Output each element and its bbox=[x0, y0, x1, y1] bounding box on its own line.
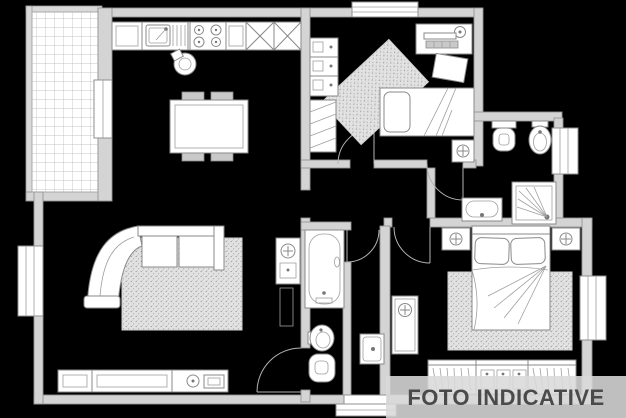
window-icon bbox=[352, 2, 418, 17]
desk-icon bbox=[416, 24, 472, 83]
dining-table-icon bbox=[170, 92, 248, 161]
kitchen-counter bbox=[112, 22, 301, 75]
nightstand-icon bbox=[552, 228, 580, 250]
washing-column-icon bbox=[276, 238, 300, 326]
toilet-icon bbox=[309, 354, 335, 382]
bidet-icon bbox=[308, 325, 334, 351]
kettle-icon bbox=[171, 49, 196, 75]
terrace-wall-top bbox=[26, 6, 102, 12]
floorplan-svg: FOTO INDICATIVE bbox=[0, 0, 626, 418]
nightstand-icon bbox=[452, 140, 474, 162]
window-icon bbox=[580, 276, 606, 340]
terrace-door-icon bbox=[94, 80, 112, 138]
bidet-icon bbox=[529, 121, 551, 154]
shower-icon bbox=[512, 182, 556, 224]
bathroom-1 bbox=[305, 230, 344, 382]
master-bedroom bbox=[392, 226, 580, 394]
nightstand-icon bbox=[442, 228, 470, 250]
hall-console-icon bbox=[360, 334, 384, 364]
hallway bbox=[360, 334, 384, 364]
door-icon bbox=[257, 348, 301, 392]
bookshelf-icon bbox=[310, 38, 338, 96]
double-bed-icon bbox=[472, 226, 550, 330]
living-room bbox=[58, 226, 300, 392]
window-icon bbox=[18, 246, 43, 316]
radiator-icon bbox=[310, 100, 336, 152]
desk-chair-icon bbox=[432, 53, 468, 82]
toilet-icon bbox=[492, 121, 516, 151]
window-icon bbox=[552, 128, 578, 174]
wardrobe-column-icon bbox=[392, 296, 418, 354]
watermark-text: FOTO INDICATIVE bbox=[407, 385, 604, 410]
floorplan-image: FOTO INDICATIVE bbox=[0, 0, 626, 418]
single-bed-icon bbox=[380, 88, 474, 136]
bathtub-icon bbox=[305, 230, 344, 308]
watermark-band: FOTO INDICATIVE bbox=[386, 376, 626, 418]
stove-icon bbox=[190, 22, 226, 50]
door-icon bbox=[347, 230, 379, 262]
terrace-tile-grid bbox=[32, 12, 98, 192]
bedroom-1 bbox=[310, 24, 474, 162]
door-icon bbox=[394, 227, 430, 263]
washbasin-icon bbox=[462, 198, 502, 221]
terrace-wall-left bbox=[26, 6, 32, 200]
tv-cabinet-icon bbox=[58, 370, 228, 392]
